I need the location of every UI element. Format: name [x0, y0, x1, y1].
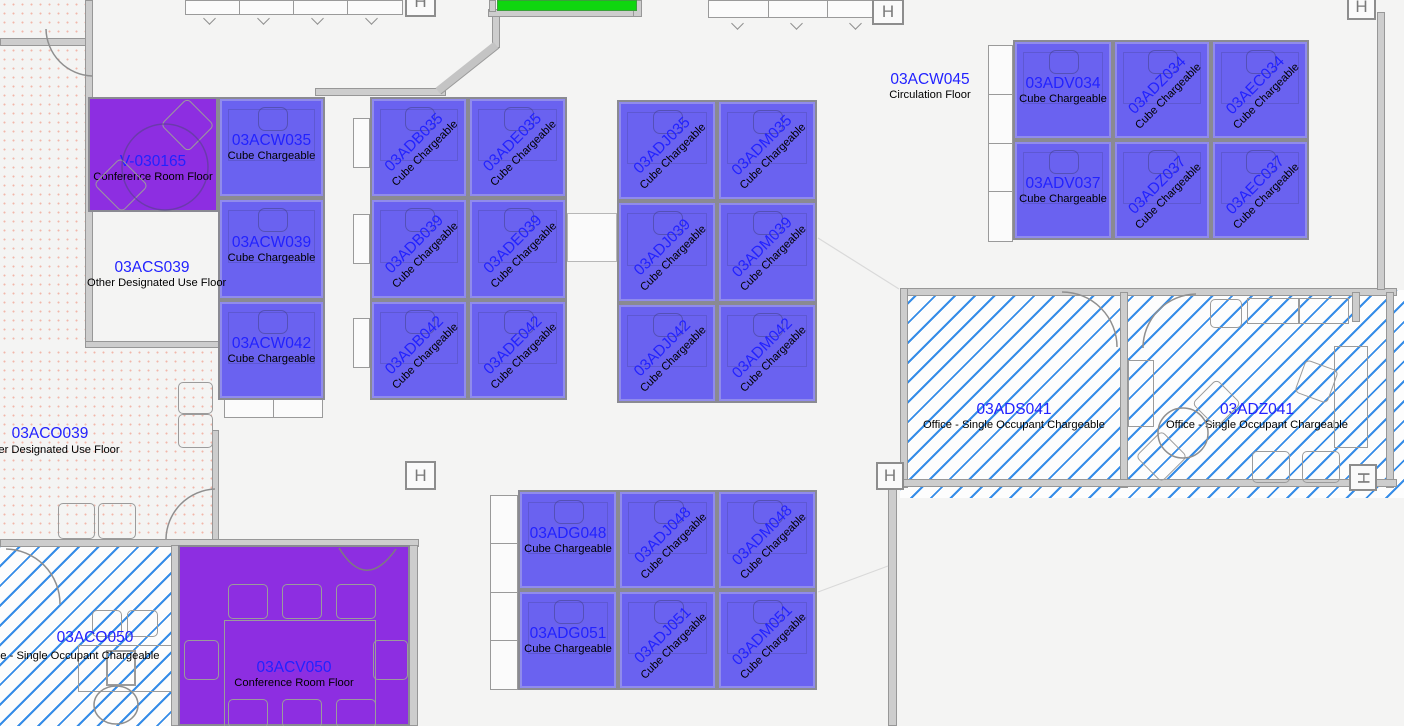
cabinet [1298, 298, 1349, 324]
room-type: Cube Chargeable [638, 223, 710, 295]
room-code: 03ADZ037 [1124, 152, 1190, 218]
wall [0, 38, 88, 46]
room-type: Cube Chargeable [639, 611, 711, 683]
cube-03adj039[interactable]: 03ADJ039Cube Chargeable [617, 201, 717, 303]
cube-03ade035[interactable]: 03ADE035Cube Chargeable [468, 97, 567, 198]
room-code: 03ADE042 [479, 312, 546, 379]
chair [178, 414, 213, 448]
cube-03adg051[interactable]: 03ADG051Cube Chargeable [518, 590, 618, 690]
cube-03ade039[interactable]: 03ADE039Cube Chargeable [468, 198, 567, 300]
cube-03adm042[interactable]: 03ADM042Cube Chargeable [717, 303, 817, 403]
cube-03acw042[interactable]: 03ACW042Cube Chargeable [218, 300, 325, 400]
cabinet-row [185, 0, 401, 15]
room-code: 03ADV037 [1026, 174, 1101, 193]
chair [1252, 451, 1290, 483]
room-03acs039[interactable] [93, 212, 218, 341]
wall [1377, 12, 1385, 290]
room-code: 03ADB042 [381, 312, 448, 379]
cube-03adg048[interactable]: 03ADG048Cube Chargeable [518, 490, 618, 590]
room-type: Cube Chargeable [228, 150, 316, 163]
wall [409, 545, 418, 726]
room-code: 03ADJ039 [630, 215, 695, 280]
cube-03adm048[interactable]: 03ADM048Cube Chargeable [717, 490, 817, 590]
chair [228, 699, 268, 726]
monitor [106, 650, 136, 686]
chair [58, 503, 95, 539]
cube-03adb039[interactable]: 03ADB039Cube Chargeable [370, 198, 468, 300]
wall [489, 0, 496, 12]
cube-03adz037[interactable]: 03ADZ037Cube Chargeable [1113, 140, 1211, 240]
room-code: 03AEC037 [1222, 152, 1289, 219]
diagonal-wall [438, 45, 496, 91]
cube-03aec034[interactable]: 03AEC034Cube Chargeable [1211, 40, 1309, 140]
column-marker-letter: H [414, 0, 426, 12]
desk [1334, 346, 1368, 448]
cube-03adj035[interactable]: 03ADJ035Cube Chargeable [617, 100, 717, 201]
room-code: 03ADZ034 [1124, 52, 1190, 118]
cabinet-strip [353, 318, 370, 366]
room-type: Cube Chargeable [738, 223, 810, 295]
column-marker: H [1349, 464, 1377, 491]
room-type: Cube Chargeable [738, 324, 810, 396]
dotted-floor-area [0, 46, 85, 342]
column-marker-letter: H [1353, 471, 1373, 483]
cube-03adb042[interactable]: 03ADB042Cube Chargeable [370, 300, 468, 400]
room-code: 03ADM039 [728, 213, 797, 282]
cube-03acw035[interactable]: 03ACW035Cube Chargeable [218, 97, 325, 198]
partition-panel [567, 213, 617, 262]
room-code: 03ADE039 [479, 211, 546, 278]
room-code: 03ADM042 [728, 314, 797, 383]
cube-03adj048[interactable]: 03ADJ048Cube Chargeable [618, 490, 717, 590]
room-code: 03ADG051 [530, 624, 607, 643]
room-type: Cube Chargeable [228, 353, 316, 366]
room-code: 03ADJ042 [630, 316, 695, 381]
column-marker-letter: H [414, 466, 426, 486]
cube-03adz034[interactable]: 03ADZ034Cube Chargeable [1113, 40, 1211, 140]
room-03acw045[interactable] [865, 66, 995, 110]
wall [492, 16, 500, 48]
room-code: 03ADM051 [728, 601, 797, 670]
room-code: 03AEC034 [1222, 52, 1289, 119]
cabinet-strip [353, 214, 370, 262]
column-marker-letter: H [884, 466, 896, 486]
wall [900, 288, 1397, 296]
chair [228, 584, 268, 619]
room-type: Cube Chargeable [524, 643, 612, 656]
room-type: Office - Single Occupant Chargeable [1166, 419, 1348, 432]
chair [282, 584, 322, 619]
cube-03aec037[interactable]: 03AEC037Cube Chargeable [1211, 140, 1309, 240]
column-marker: H [405, 461, 436, 490]
column-marker-letter: H [882, 2, 894, 22]
cabinet-row [224, 398, 321, 418]
room-type: Cube Chargeable [1019, 93, 1107, 106]
wall [315, 88, 446, 96]
room-code: 03ADE035 [479, 109, 546, 176]
room-type: Office - Single Occupant Chargeable [923, 419, 1105, 432]
room-type: Cube Chargeable [738, 122, 810, 194]
chair [1210, 299, 1242, 328]
chair [127, 610, 158, 637]
chair [1302, 451, 1340, 483]
room-type: Cube Chargeable [638, 122, 710, 194]
wall [900, 288, 908, 488]
room-type: Cube Chargeable [489, 321, 561, 393]
room-code: 03ADJ051 [630, 603, 695, 668]
faint-link-line [818, 566, 888, 592]
room-code: 03ADV034 [1026, 74, 1101, 93]
chair [336, 584, 376, 619]
cabinet-strip [490, 495, 518, 688]
room-type: Cube Chargeable [524, 543, 612, 556]
room-type: Cube Chargeable [390, 119, 462, 191]
room-type: Cube Chargeable [1019, 193, 1107, 206]
cube-03adm039[interactable]: 03ADM039Cube Chargeable [717, 201, 817, 303]
column-marker: H [876, 462, 904, 490]
wall [85, 341, 225, 348]
chair [92, 610, 122, 637]
column-marker: H [405, 0, 436, 17]
room-code: 03ADJ048 [630, 503, 695, 568]
chair [282, 699, 322, 726]
room-code: 03ACW042 [232, 334, 311, 353]
room-type: Cube Chargeable [1231, 161, 1303, 233]
column-marker: H [1347, 0, 1376, 20]
room-type: Cube Chargeable [489, 119, 561, 191]
room-code: 03ADM048 [728, 501, 797, 570]
room-type: Cube Chargeable [228, 252, 316, 265]
wall [1386, 292, 1394, 488]
wall [1120, 292, 1128, 488]
room-code: 03ADS041 [977, 400, 1052, 419]
dotted-floor-area [0, 0, 85, 38]
wall [212, 430, 219, 544]
room-code: 03ADJ035 [630, 113, 695, 178]
room-type: Cube Chargeable [489, 220, 561, 292]
cube-03adv037[interactable]: 03ADV037Cube Chargeable [1013, 140, 1113, 240]
cabinet [1247, 298, 1300, 324]
room-type: Cube Chargeable [738, 611, 810, 683]
chair [336, 699, 376, 726]
chair [184, 640, 219, 680]
cube-03ade042[interactable]: 03ADE042Cube Chargeable [468, 300, 567, 400]
room-type: Cube Chargeable [390, 220, 462, 292]
column-marker: H [872, 0, 904, 25]
highlighted-room[interactable] [497, 0, 637, 11]
side-table [1128, 360, 1154, 427]
room-type: Cube Chargeable [1133, 161, 1205, 233]
column-marker-letter: H [1355, 0, 1367, 17]
room-code: 03ADB035 [381, 109, 448, 176]
room-code: 03ADM035 [728, 111, 797, 180]
room-code: 03ADG048 [530, 524, 607, 543]
cube-03adm035[interactable]: 03ADM035Cube Chargeable [717, 100, 817, 201]
cube-03adb035[interactable]: 03ADB035Cube Chargeable [370, 97, 468, 198]
cabinet-chevron-icon [790, 17, 803, 30]
room-type: Cube Chargeable [1231, 61, 1303, 133]
room-type: Cube Chargeable [1133, 61, 1205, 133]
wall [888, 487, 897, 726]
cabinet-row [708, 0, 887, 18]
room-type: Cube Chargeable [639, 511, 711, 583]
cube-03adj042[interactable]: 03ADJ042Cube Chargeable [617, 303, 717, 403]
floor-plan-canvas: V-030165 Conference Room Floor 03ACS039 … [0, 0, 1404, 726]
cube-03adj051[interactable]: 03ADJ051Cube Chargeable [618, 590, 717, 690]
room-code: 03ACW035 [232, 131, 311, 150]
room-type: Cube Chargeable [638, 324, 710, 396]
cube-03adv034[interactable]: 03ADV034Cube Chargeable [1013, 40, 1113, 140]
room-code: 03ACW039 [232, 233, 311, 252]
room-03ads041[interactable]: 03ADS041 Office - Single Occupant Charge… [908, 296, 1120, 479]
cabinet-chevron-icon [731, 17, 744, 30]
diagonal-wall-edge [441, 48, 499, 94]
room-type: Cube Chargeable [390, 321, 462, 393]
chair [373, 640, 408, 680]
cube-03adm051[interactable]: 03ADM051Cube Chargeable [717, 590, 817, 690]
faint-link-line [818, 238, 899, 289]
chair [178, 382, 213, 414]
cabinet-strip [353, 118, 370, 166]
room-type: Cube Chargeable [738, 511, 810, 583]
room-code: 03ADB039 [381, 211, 448, 278]
chair [98, 503, 136, 539]
cube-03acw039[interactable]: 03ACW039Cube Chargeable [218, 198, 325, 300]
cabinet-chevron-icon [849, 17, 862, 30]
